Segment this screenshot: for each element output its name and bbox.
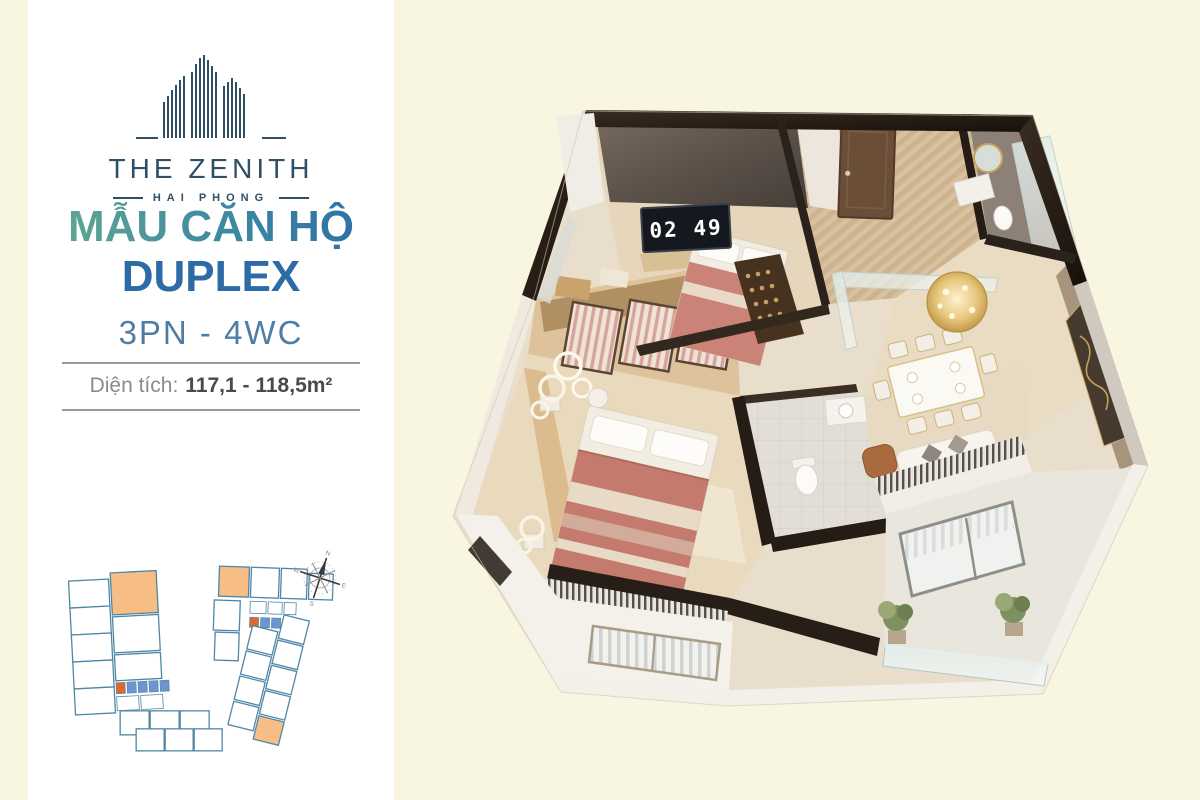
compass-n: N <box>325 550 332 558</box>
title-line-2: DUPLEX <box>28 252 394 302</box>
highlighted-unit <box>253 716 284 746</box>
unit-config: 3PN - 4WC <box>28 314 394 352</box>
info-panel: THE ZENITH HAI PHONG MẪU CĂN HỘ DUPLEX 3… <box>28 0 394 800</box>
balcony <box>874 436 1148 694</box>
area-label: Diện tích: <box>90 374 179 397</box>
compass-s: S <box>308 600 315 608</box>
floor-keyplan: N E S W <box>68 550 353 755</box>
subtitle-rule-right <box>279 197 309 199</box>
tv-feature-wall <box>596 116 808 208</box>
highlighted-unit <box>218 566 249 597</box>
area-row: Diện tích:117,1 - 118,5m² <box>62 362 360 411</box>
brand-logo: THE ZENITH HAI PHONG <box>28 52 394 204</box>
entry-hall <box>796 117 896 219</box>
round-mirror <box>974 144 1002 172</box>
side-table <box>588 388 608 408</box>
clock-text: 02 49 <box>649 215 723 243</box>
highlighted-unit <box>110 571 158 615</box>
compass-e: E <box>340 582 347 590</box>
subtitle-rule-left <box>113 197 143 199</box>
keyplan-core <box>116 680 170 694</box>
keyplan-building-left <box>68 567 224 755</box>
apartment-3d-render: 02 49 <box>428 66 1176 734</box>
area-value: 117,1 - 118,5m² <box>185 374 332 397</box>
listing-title: MẪU CĂN HỘ DUPLEX <box>28 202 394 302</box>
clock-display: 02 49 <box>641 204 731 253</box>
brand-name: THE ZENITH <box>28 153 394 185</box>
brochure-page: { "page": { "background": "#f8f5e1", "pa… <box>0 0 1200 800</box>
title-line-1: MẪU CĂN HỘ <box>28 202 394 252</box>
entry-door <box>838 121 895 219</box>
zenith-building-icon <box>129 52 294 144</box>
